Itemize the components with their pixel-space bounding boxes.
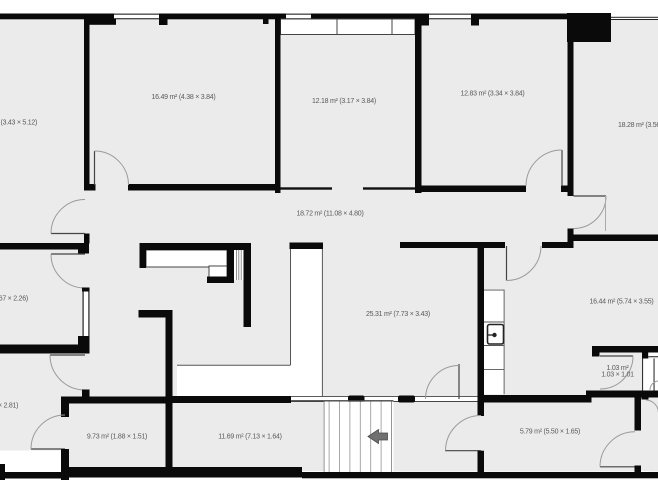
svg-text:16.44 m² (5.74 × 3.55): 16.44 m² (5.74 × 3.55)	[590, 298, 654, 305]
svg-text:5.79 m² (5.50 × 1.65): 5.79 m² (5.50 × 1.65)	[520, 428, 580, 435]
svg-text:18.72 m² (11.08 × 4.80): 18.72 m² (11.08 × 4.80)	[296, 210, 363, 217]
svg-text:18.28 m² (3.56 × 5.12): 18.28 m² (3.56 × 5.12)	[618, 122, 658, 129]
svg-text:.67 × 2.26): .67 × 2.26)	[0, 295, 28, 302]
svg-text:1.03 × 1.01: 1.03 × 1.01	[601, 372, 634, 379]
svg-text:(3.43 × 5.12): (3.43 × 5.12)	[1, 119, 38, 126]
svg-text:9.73 m² (1.88 × 1.51): 9.73 m² (1.88 × 1.51)	[87, 433, 147, 440]
svg-text:16.49 m² (4.38 × 3.84): 16.49 m² (4.38 × 3.84)	[152, 94, 216, 101]
svg-text:12.83 m² (3.34 × 3.84): 12.83 m² (3.34 × 3.84)	[461, 90, 525, 97]
svg-text:12.18 m² (3.17 × 3.84): 12.18 m² (3.17 × 3.84)	[312, 98, 376, 105]
svg-text:11.69 m² (7.13 × 1.64): 11.69 m² (7.13 × 1.64)	[218, 433, 281, 440]
svg-text:× 2.81): × 2.81)	[0, 402, 18, 409]
svg-text:25.31 m² (7.73 × 3.43): 25.31 m² (7.73 × 3.43)	[366, 311, 430, 318]
